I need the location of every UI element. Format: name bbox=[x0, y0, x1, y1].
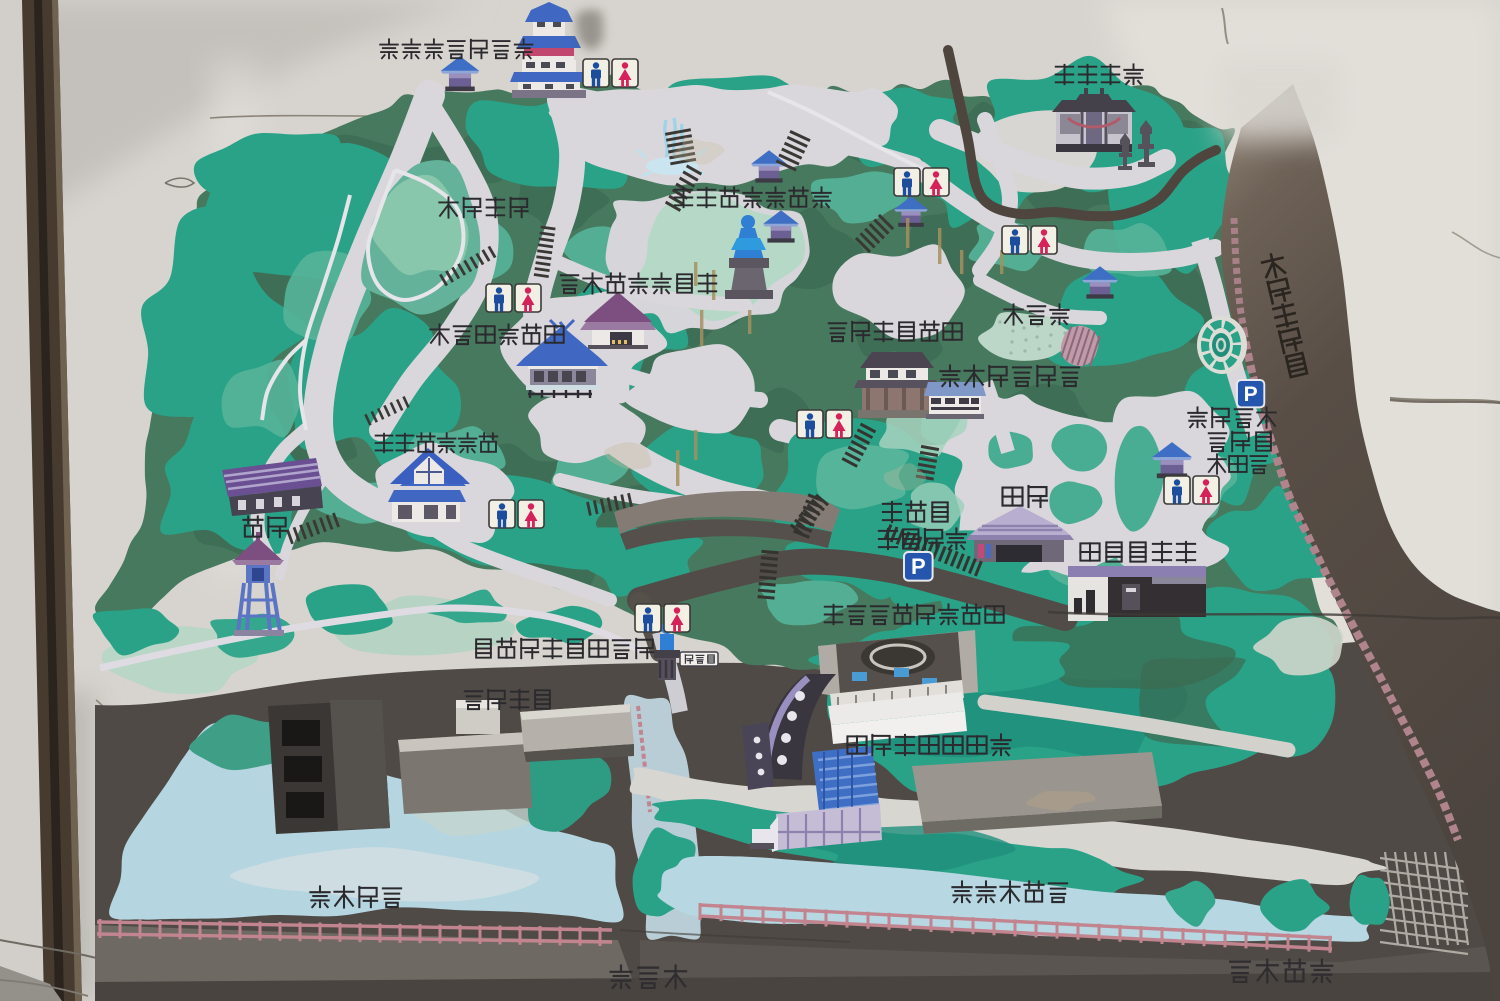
svg-text:P: P bbox=[911, 554, 926, 579]
svg-text:P: P bbox=[1244, 383, 1258, 406]
